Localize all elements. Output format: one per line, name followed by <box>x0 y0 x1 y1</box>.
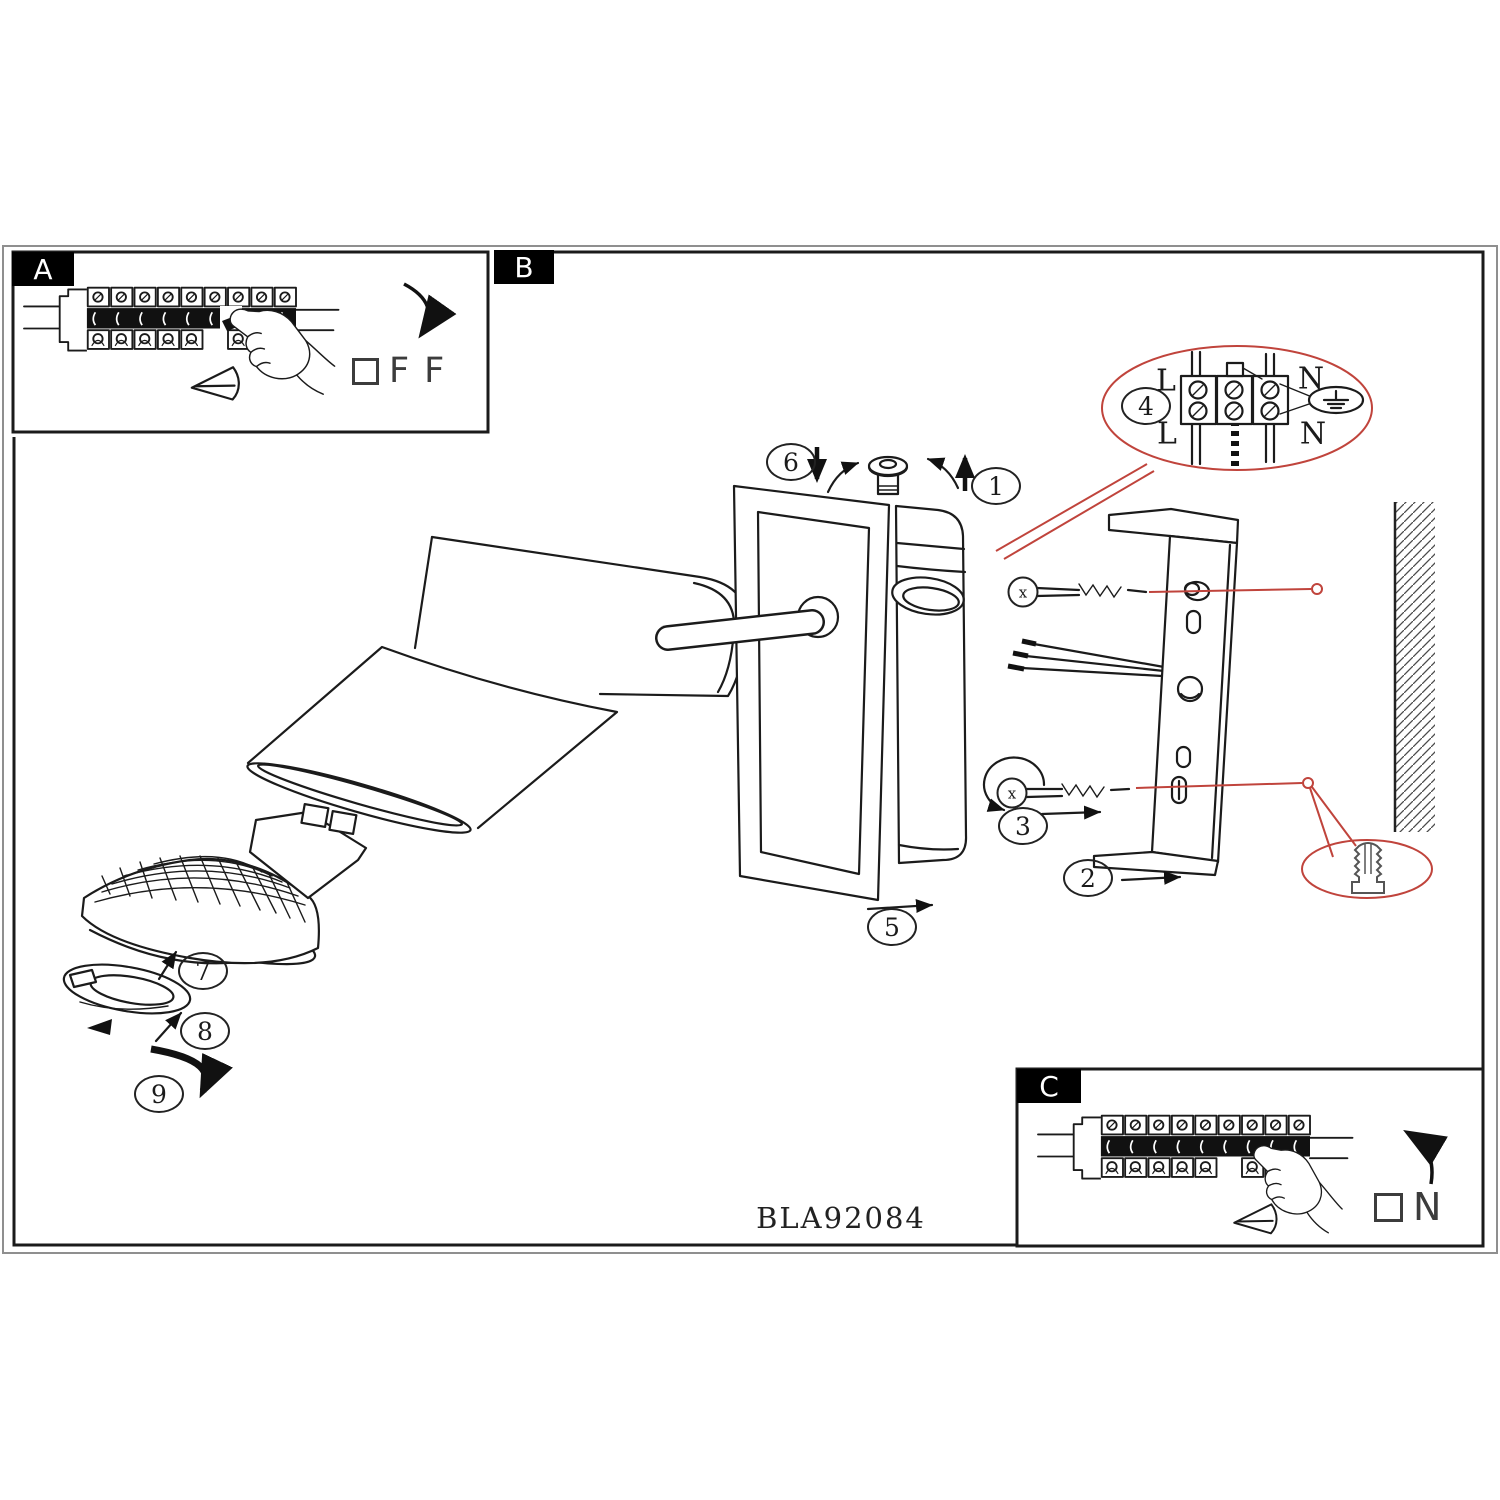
panel-a-label: A <box>12 252 74 286</box>
bulb-pin <box>329 811 356 834</box>
on-state-text: N <box>1413 1188 1443 1226</box>
bulb-pin <box>301 804 328 827</box>
off-state-text: FF <box>389 354 459 389</box>
wall-plate <box>734 486 889 900</box>
step-badge-3: 3 <box>998 807 1048 845</box>
wall-anchor-drawing <box>1352 843 1384 893</box>
step-badge-6: 6 <box>766 443 816 481</box>
panel-b-letter: B <box>514 251 533 284</box>
on-state-square-icon <box>1374 1193 1403 1222</box>
screw-head-mark-upper: x <box>1008 577 1039 608</box>
bracket-slot <box>1187 611 1200 633</box>
bracket-slot <box>1177 747 1190 767</box>
screw-head-mark-lower: x <box>997 778 1028 809</box>
step-badge-1: 1 <box>971 467 1021 505</box>
off-state-square-icon <box>352 358 379 385</box>
panel-a-letter: A <box>33 253 52 286</box>
housing-box <box>890 506 966 863</box>
terminal-label-live-bottom: L <box>1157 417 1177 452</box>
product-code: BLA92084 <box>756 1201 926 1235</box>
diagram-artwork <box>0 0 1500 1500</box>
off-state: FF <box>352 354 459 389</box>
step-badge-5: 5 <box>867 908 917 946</box>
terminal-label-neutral-bottom: N <box>1300 417 1326 452</box>
panel-c-letter: C <box>1039 1070 1059 1103</box>
panel-c-label: C <box>1017 1069 1081 1103</box>
anchor-point-upper <box>1312 584 1322 594</box>
panel-b-label: B <box>494 250 554 284</box>
step-badge-2: 2 <box>1063 859 1113 897</box>
on-state: N <box>1374 1188 1443 1226</box>
step-badge-7: 7 <box>178 952 228 990</box>
terminal-label-live-top: L <box>1156 364 1176 399</box>
terminal-label-neutral-top: N <box>1298 362 1324 397</box>
wall-section <box>1395 502 1435 832</box>
step-badge-8: 8 <box>180 1012 230 1050</box>
step-badge-9: 9 <box>134 1075 184 1113</box>
anchor-point-lower <box>1303 778 1313 788</box>
instruction-manual-page: A B C FF N 1 2 3 4 5 6 7 8 9 L L N N x x… <box>0 0 1500 1500</box>
